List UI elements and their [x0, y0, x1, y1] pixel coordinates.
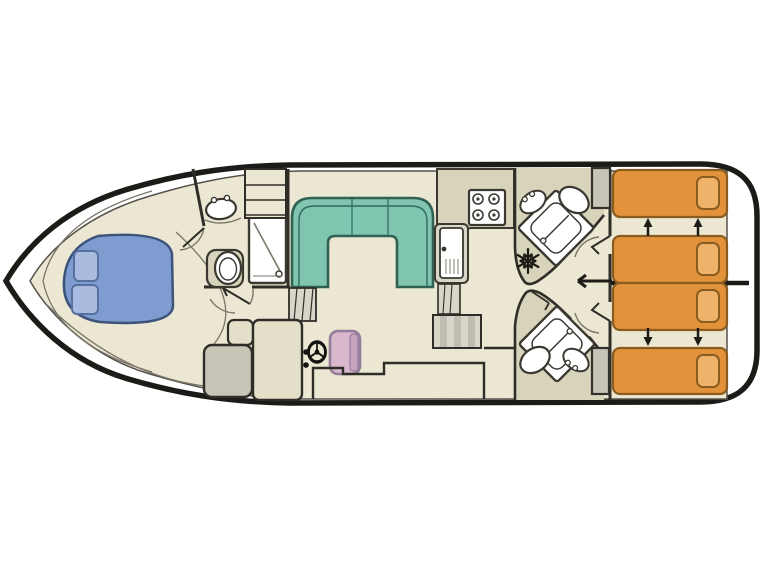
ladder-icon [245, 169, 286, 218]
bow-pillow [74, 251, 98, 281]
wardrobe [592, 168, 610, 208]
throttle-lever [303, 349, 309, 355]
galley-sink [435, 224, 468, 283]
bed-pillow [697, 243, 719, 275]
bed-pillow [697, 355, 719, 387]
wardrobe [592, 348, 609, 394]
boat-floor-plan [0, 0, 768, 576]
helm-console [253, 320, 302, 400]
side-seat [204, 345, 252, 397]
stove-burner-icon [469, 190, 505, 225]
bed-pillow [697, 177, 719, 209]
boat-floor-plan-page [0, 0, 768, 576]
throttle-lever [303, 362, 309, 368]
bow-pillow [72, 285, 98, 314]
companionway-ladder [245, 169, 286, 218]
side-cabinet [228, 320, 253, 345]
bed-pillow [697, 290, 719, 322]
sofa-steps [289, 288, 316, 321]
toilet-icon [207, 250, 243, 287]
shower-icon [249, 217, 286, 283]
